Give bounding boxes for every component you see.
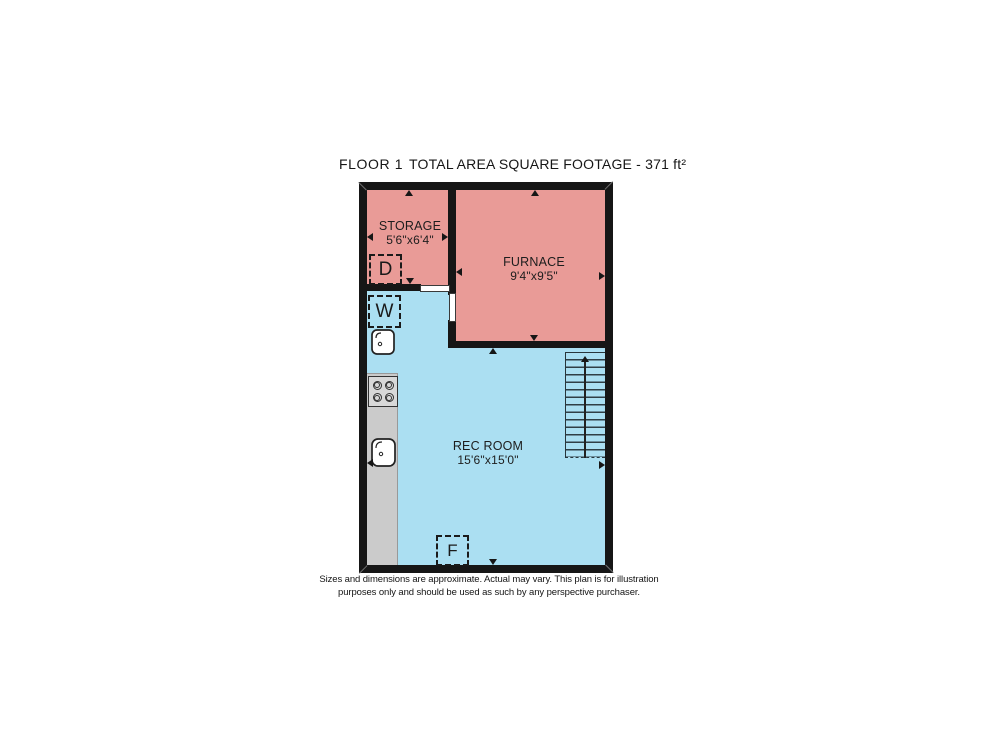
disclaimer-line: purposes only and should be used as such… <box>300 587 678 600</box>
dimension-arrow-up-icon <box>489 348 497 354</box>
wall-corner-seam <box>605 564 614 573</box>
dimension-arrow-right-icon <box>442 233 448 241</box>
burner-icon <box>373 393 382 402</box>
furnace-room-label: FURNACE 9'4"x9'5" <box>482 255 586 283</box>
disclaimer-line: Sizes and dimensions are approximate. Ac… <box>300 574 678 587</box>
room-name: REC ROOM <box>436 439 540 453</box>
storage-door <box>420 285 450 292</box>
disclaimer: Sizes and dimensions are approximate. Ac… <box>300 574 678 599</box>
furnace-unit-box: F <box>436 535 469 566</box>
dimension-arrow-left-icon <box>367 459 373 467</box>
washer-box: W <box>368 295 401 328</box>
floor-plan-page: FLOOR 1 TOTAL AREA SQUARE FOOTAGE - 371 … <box>0 0 1000 737</box>
dimension-arrow-up-icon <box>531 190 539 196</box>
room-dims: 15'6"x15'0" <box>436 453 540 467</box>
dimension-arrow-down-icon <box>406 278 414 284</box>
wall-corner-seam <box>359 565 368 574</box>
dryer-box: D <box>369 254 402 285</box>
floor-title: FLOOR 1 <box>339 156 403 172</box>
dimension-arrow-down-icon <box>489 559 497 565</box>
furnace-unit-label: F <box>447 541 457 561</box>
dimension-arrow-up-icon <box>405 190 413 196</box>
room-name: FURNACE <box>482 255 586 269</box>
burner-icon <box>385 393 394 402</box>
dimension-arrow-right-icon <box>599 272 605 280</box>
total-area-title: TOTAL AREA SQUARE FOOTAGE - 371 ft² <box>409 156 686 172</box>
burner-icon <box>385 381 394 390</box>
stairs-up-arrow-icon <box>581 356 589 362</box>
dimension-arrow-right-icon <box>599 461 605 469</box>
washer-label: W <box>376 301 394 323</box>
stove-icon <box>368 376 398 407</box>
floor-plan: D W F STORAGE 5'6"x6'4" FURNACE 9'4"x9'5… <box>359 182 613 573</box>
room-dims: 9'4"x9'5" <box>482 269 586 283</box>
wall-storage-bottom <box>359 284 421 291</box>
furnace-door <box>449 293 456 322</box>
wall-corner-seam <box>604 181 613 190</box>
sink-icon <box>371 329 395 355</box>
wall-corner-seam <box>358 182 367 191</box>
burner-icon <box>373 381 382 390</box>
wall-furnace-bottom <box>448 341 613 348</box>
sink-icon <box>371 438 396 467</box>
dimension-arrow-down-icon <box>530 335 538 341</box>
dimension-arrow-left-icon <box>456 268 462 276</box>
dimension-arrow-left-icon <box>367 233 373 241</box>
rec-room-label: REC ROOM 15'6"x15'0" <box>436 439 540 467</box>
stairs-direction-line <box>584 358 586 458</box>
room-name: STORAGE <box>358 219 462 233</box>
dryer-label: D <box>379 259 393 281</box>
